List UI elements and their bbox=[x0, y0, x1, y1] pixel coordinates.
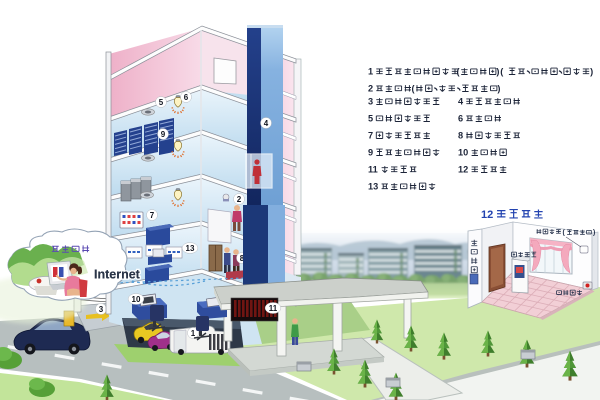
svg-text:3: 3 bbox=[99, 305, 104, 314]
svg-text:9: 9 bbox=[368, 148, 373, 158]
svg-text:7: 7 bbox=[368, 131, 373, 141]
svg-text:6: 6 bbox=[184, 93, 189, 102]
svg-text:5: 5 bbox=[368, 114, 373, 124]
svg-text:1: 1 bbox=[368, 67, 373, 77]
svg-text:4: 4 bbox=[458, 97, 464, 107]
svg-text:13: 13 bbox=[368, 182, 378, 192]
svg-text:1: 1 bbox=[191, 329, 196, 338]
svg-text:4: 4 bbox=[264, 119, 269, 128]
svg-text:10: 10 bbox=[458, 148, 468, 158]
svg-text:): ) bbox=[590, 67, 593, 77]
svg-text:5: 5 bbox=[159, 98, 164, 107]
svg-text:11: 11 bbox=[368, 165, 378, 175]
svg-text:11: 11 bbox=[269, 304, 278, 313]
svg-text:): ) bbox=[593, 230, 595, 237]
svg-text:2: 2 bbox=[237, 195, 242, 204]
svg-text:10: 10 bbox=[132, 295, 141, 304]
svg-text:9: 9 bbox=[161, 130, 166, 139]
svg-text:12: 12 bbox=[458, 165, 468, 175]
svg-text:3: 3 bbox=[368, 97, 373, 107]
svg-text:6: 6 bbox=[458, 114, 463, 124]
svg-text:8: 8 bbox=[458, 131, 463, 141]
svg-text:7: 7 bbox=[150, 211, 155, 220]
svg-text:2: 2 bbox=[368, 84, 373, 94]
svg-text:Internet: Internet bbox=[94, 268, 141, 282]
svg-text:12: 12 bbox=[481, 209, 493, 221]
svg-text:13: 13 bbox=[186, 244, 195, 253]
svg-text:): ) bbox=[497, 84, 500, 94]
svg-text:): ) bbox=[496, 67, 499, 77]
